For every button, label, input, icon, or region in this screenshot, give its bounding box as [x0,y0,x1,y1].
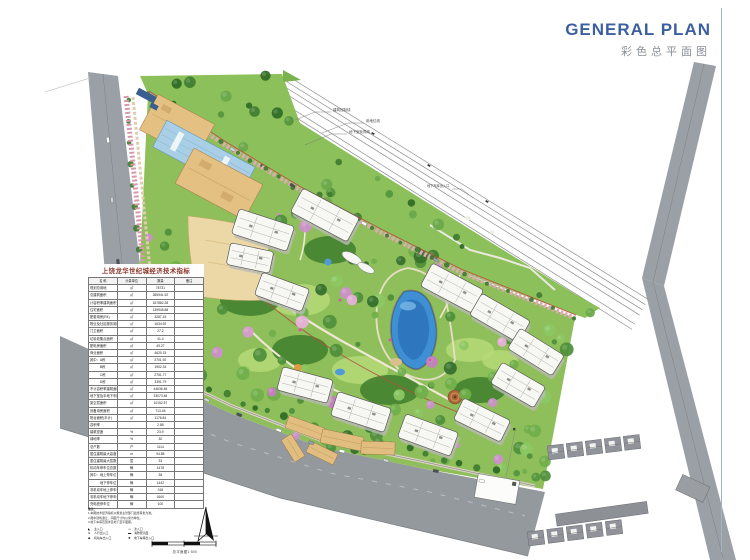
col-name: 名 称 [89,278,118,285]
col-quantity: 数量 [146,278,175,285]
table-row: 配电房面积 ㎡ 49.27 [89,342,204,349]
sheet-divider-line [721,8,722,552]
drawing-sheet: 建筑控制线 用地红线 地下室轮廓线 地下车库出入口 GENERAL PLAN 彩… [0,0,750,560]
table-row: C栋 ㎡ 2751.77 [89,371,204,378]
table-row: 地下室及半地下车库 ㎡ 33073.48 [89,393,204,400]
col-unit: 计量单位 [117,278,146,285]
note-line: 3.地下车库范围详见地下室平面图。 [88,520,160,524]
title-block: GENERAL PLAN 彩色总平面图 [565,20,711,59]
legend-label: 人行出入口 [94,531,108,535]
existing-houses [527,434,710,545]
label-red-line: 用地红线 [366,118,380,123]
table-row: 绿地率 % 30 [89,436,204,443]
table-row: 计容积率建筑面积 ㎡ 167882.28 [89,299,204,306]
table-row: 规划总用地 ㎡ 78731 [89,285,204,292]
table-row: 架空层面积 ㎡ 10152.57 [89,400,204,407]
legend: ◣主入口 ◅次入口 ➤人行出入口 ▬消防登高面 ◆机动车出入口 ✚地下车库出入口 [88,527,166,541]
legend-item: ◆机动车出入口 [88,536,126,541]
table-header-row: 名 称 计量单位 数量 备注 [89,278,204,285]
label-garage-entry: 地下车库出入口 [427,183,449,188]
page-title: GENERAL PLAN [565,20,711,40]
table-row: 地下停车位 辆 1442 [89,479,204,486]
table-row: 总户数 户 1114 [89,443,204,450]
table-row: D栋 ㎡ 3391.79 [89,378,204,385]
table-row: 垃圾收集点面积 ㎡ 41.4 [89,335,204,342]
table-row: 机动车停车位总数 辆 1478 [89,465,204,472]
notes: 备注： 1.本图技术经济指标以规划主管部门最终审批为准。2.图中建筑退让、间距尺… [88,507,160,525]
table-row: B栋 ㎡ 1902.34 [89,364,204,371]
indicator-table: 名 称 计量单位 数量 备注 规划总用地 ㎡ 78731 总建筑面积 ㎡ 285… [88,277,204,509]
legend-label: 机动车出入口 [94,536,111,540]
table-row: 不计容积率建筑面积 ㎡ 44636.48 [89,386,204,393]
table-row: 商业面积 ㎡ 4620.15 [89,350,204,357]
table-row: 门卫面积 ㎡ 27.2 [89,328,204,335]
table-title: 上饶龙华世纪城经济技术指标 [88,264,204,277]
label-control-line: 建筑控制线 [333,107,351,112]
table-row: 设备用房面积 ㎡ 713.45 [89,407,204,414]
table-row: 容积率 2.88 [89,422,204,429]
legend-label: 消防登高面 [134,531,148,535]
table-row: 建筑密度 % 23.9 [89,429,204,436]
table-row: 居住建筑最大高度 m 94.85 [89,450,204,457]
table-row: 居住建筑最大层数 层 33 [89,458,204,465]
scale-caption: 总平面图1:500 [150,549,220,554]
table-row: 住宅面积 ㎡ 139945.88 [89,306,204,313]
table-row: 配套用房(R4) ㎡ 3287.15 [89,314,204,321]
table-row: 物业及社区服务用房(5‰) ㎡ 1634.92 [89,321,204,328]
scale-bar [150,540,220,548]
notes-legend-block: 备注： 1.本图技术经济指标以规划主管部门最终审批为准。2.图中建筑退让、间距尺… [88,507,228,540]
table-row: 其中：A栋 ㎡ 2701.92 [89,357,204,364]
table-row: 总建筑面积 ㎡ 285941.92 [89,292,204,299]
table-row: 其中：地上停车位 辆 36 [89,472,204,479]
table-row: 阳台面积(半计) ㎡ 1176.84 [89,414,204,421]
economic-indicator-panel: 上饶龙华世纪城经济技术指标 名 称 计量单位 数量 备注 规划总用地 ㎡ 787… [88,264,204,509]
page-subtitle: 彩色总平面图 [565,43,711,59]
label-basement-line: 地下室轮廓线 [349,129,370,134]
table-row: 非机动车地下停车位 辆 1600 [89,494,204,501]
table-row: 非机动车地上停车位 辆 318 [89,486,204,493]
col-note: 备注 [175,278,204,285]
